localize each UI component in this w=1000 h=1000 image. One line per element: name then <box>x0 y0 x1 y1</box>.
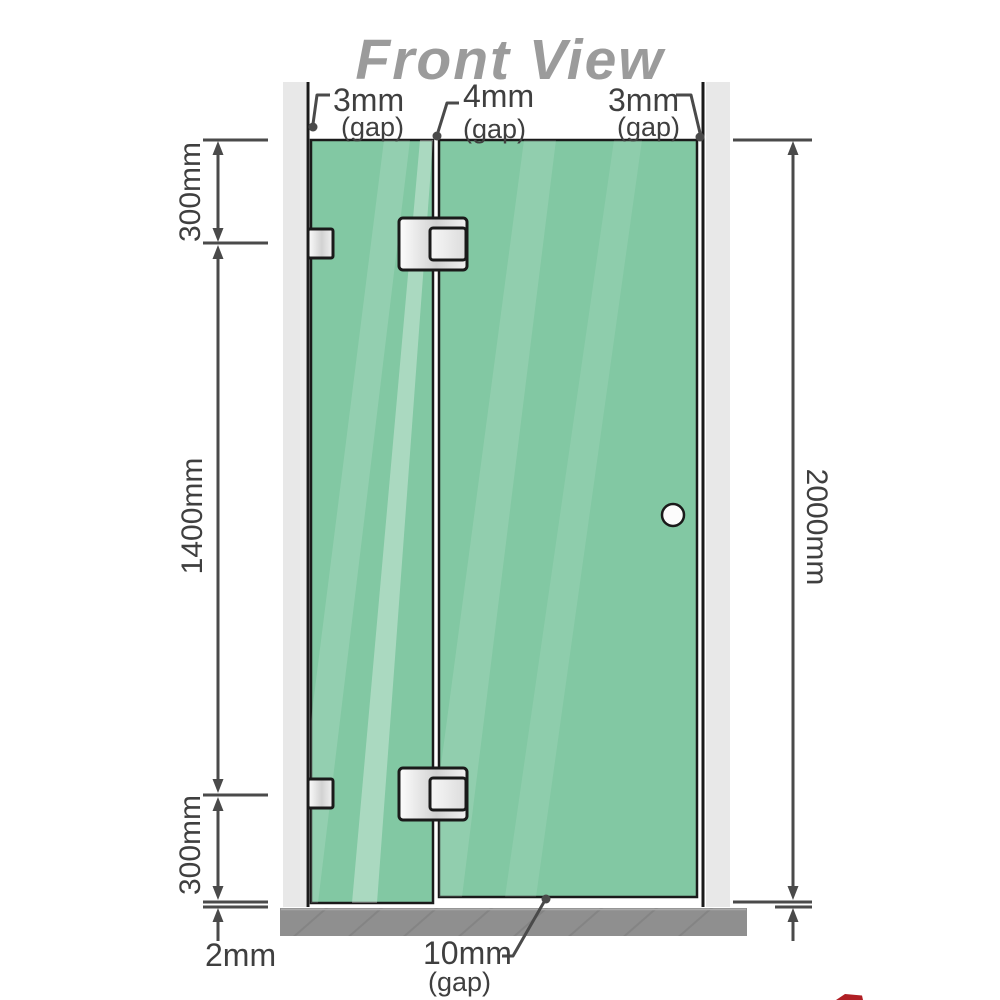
gap-middle-suffix: (gap) <box>463 114 526 144</box>
dim-label-300mm-top: 300mm <box>174 142 207 242</box>
diagram-canvas: Front View <box>0 0 1000 1000</box>
gap-callout-right: 3mm (gap) <box>608 82 705 142</box>
gap-right-suffix: (gap) <box>617 112 680 142</box>
dim-label-1400mm: 1400mm <box>176 458 209 575</box>
right-wall <box>706 82 730 907</box>
partial-logo-mark <box>836 994 863 1000</box>
floor-base <box>280 908 747 936</box>
door-handle-knob <box>662 504 684 526</box>
gap-callout-left: 3mm (gap) <box>309 82 405 142</box>
hinge-top <box>399 218 467 270</box>
dimension-left-chain: 300mm 1400mm 300mm 2mm <box>174 140 276 973</box>
wall-bracket-top <box>308 229 333 258</box>
gap-bottom-suffix: (gap) <box>428 967 491 997</box>
left-wall <box>283 82 306 907</box>
wall-bracket-bottom <box>308 779 333 808</box>
front-view-diagram: Front View <box>0 0 1000 1000</box>
gap-left-suffix: (gap) <box>341 112 404 142</box>
gap-middle-value: 4mm <box>463 78 534 114</box>
hinge-bottom <box>399 768 467 820</box>
dim-label-300mm-bottom: 300mm <box>174 795 207 895</box>
dimension-right-total: 2000mm <box>733 140 833 941</box>
gap-bottom-value: 10mm <box>423 935 512 971</box>
dim-label-2000mm: 2000mm <box>800 469 833 586</box>
dim-label-2mm: 2mm <box>205 937 276 973</box>
